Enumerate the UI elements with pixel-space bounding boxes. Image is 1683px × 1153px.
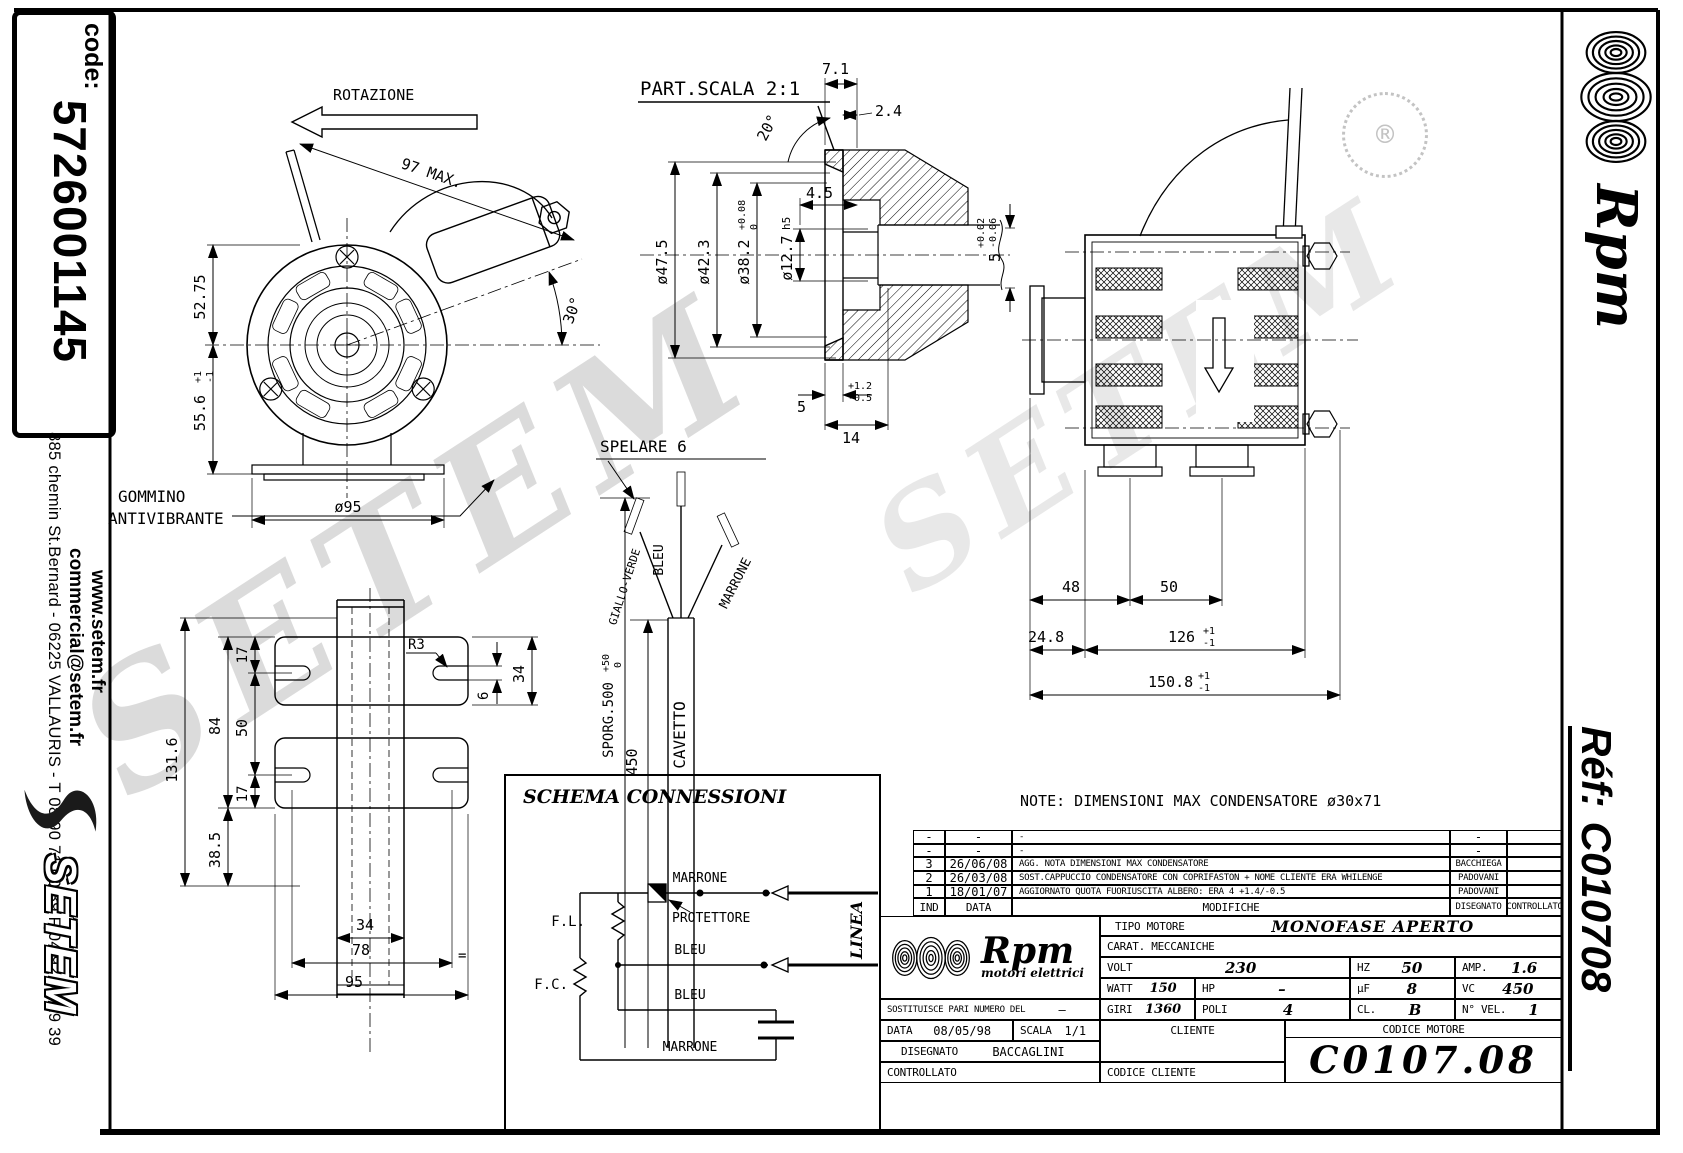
carat-cell: CARAT. MECCANICHE — [1100, 936, 1562, 957]
rev-row-dis: - — [1450, 830, 1507, 844]
dim-17a: 17 — [235, 647, 251, 664]
cavetto-label: CAVETTO — [670, 701, 689, 768]
codice-cliente-cell: CODICE CLIENTE — [1100, 1062, 1285, 1083]
dim-50-side: 50 — [1160, 578, 1178, 596]
schema-bleu-1: BLEU — [674, 943, 705, 958]
hp-cell: HP– — [1195, 978, 1350, 999]
uf-cell: µF8 — [1350, 978, 1455, 999]
cliente-cell: CLIENTE — [1100, 1020, 1285, 1062]
code-box: code: 5726001145 — [12, 10, 116, 438]
rev-row-dis: BACCHIEGA — [1450, 857, 1507, 871]
motor-base — [252, 433, 444, 480]
schema-fl: F.L. — [551, 914, 585, 930]
rev-row-data: 18/01/07 — [945, 885, 1012, 898]
vc-cell: VC450 — [1455, 978, 1562, 999]
rev-row-ind: - — [913, 830, 945, 844]
dim-150-8-tol-p: +1 — [1198, 671, 1210, 682]
cl-cell: CL.B — [1350, 999, 1455, 1020]
feet — [1098, 445, 1254, 476]
rev-row-dis: PADOVANI — [1450, 885, 1507, 898]
equal-mark: = — [458, 948, 466, 964]
setem-logo: SETEM — [14, 766, 106, 1066]
dim-450: 450 — [623, 748, 641, 775]
dim-55-6: 55.6 +1 -1 — [191, 371, 216, 431]
wire-bleu-label: BLEU — [652, 544, 667, 575]
setem-logo-text: SETEM — [35, 854, 85, 1016]
svg-text:h5: h5 — [780, 217, 793, 230]
rev-row-ind: 1 — [913, 885, 945, 898]
rev-header-controllato: CONTROLLATO — [1507, 898, 1562, 916]
schema-protettore: PROTETTORE — [672, 911, 750, 926]
dim-6: 6 — [476, 692, 492, 700]
dim-r3: R3 — [408, 637, 425, 653]
dim-20deg: 20° — [753, 111, 782, 143]
rev-row-ind: 3 — [913, 857, 945, 871]
svg-text:+0.08: +0.08 — [737, 200, 748, 230]
rev-header-modifiche: MODIFICHE — [1012, 898, 1450, 916]
rev-row-ctrl — [1507, 844, 1562, 857]
code-value: 5726001145 — [43, 100, 97, 363]
nvel-cell: N° VEL.1 — [1455, 999, 1562, 1020]
dim-5a-tol-m: -0.5 — [848, 393, 872, 404]
dim-sporg: SPORG.500 +50 0 — [601, 654, 624, 758]
dim-5a-tol-p: +1.2 — [848, 381, 872, 392]
dim-34-bottom: 34 — [356, 916, 374, 934]
controllato-cell: CONTROLLATO — [880, 1062, 1100, 1083]
dim-d12-7: ø12.7 h5 — [778, 217, 796, 281]
svg-text:ø12.7: ø12.7 — [778, 235, 796, 280]
dim-48: 48 — [1062, 578, 1080, 596]
rev-row-ind: 2 — [913, 871, 945, 885]
codice-motore-value: C0107.08 — [1286, 1038, 1561, 1082]
svg-text:+0.02: +0.02 — [976, 218, 987, 248]
rev-row-dis: - — [1450, 844, 1507, 857]
volt-cell: VOLT230 — [1100, 957, 1350, 978]
rev-header-ind: IND — [913, 898, 945, 916]
dim-97-max: 97 MAX. — [399, 154, 465, 192]
dim-50-bracket: 50 — [233, 719, 251, 737]
slots — [275, 666, 468, 782]
dim-95: 95 — [345, 973, 363, 991]
titleblock-brand: Rpm — [981, 936, 1084, 966]
rev-row-mod: - — [1012, 844, 1450, 857]
titleblock-tagline: motori elettrici — [981, 966, 1084, 980]
dim-150-8-tol-m: -1 — [1198, 683, 1210, 694]
schema-fc: F.C. — [534, 977, 568, 993]
setem-swoosh-icon — [19, 766, 101, 848]
dim-d38-2: ø38.2 +0.08 0 — [735, 200, 760, 285]
dim-d95: ø95 — [334, 498, 361, 516]
rotation-arrow-icon — [292, 107, 477, 137]
tipo-motore-cell: TIPO MOTORE MONOFASE APERTO — [1100, 916, 1562, 936]
rev-row-ctrl — [1507, 885, 1562, 898]
svg-text:0: 0 — [749, 224, 760, 230]
rev-row-ctrl — [1507, 830, 1562, 844]
schema-bleu-2: BLEU — [674, 988, 705, 1003]
dim-d42-3: ø42.3 — [695, 239, 713, 284]
titleblock-coil-icon — [889, 934, 973, 982]
dim-131-6: 131.6 — [163, 737, 181, 782]
dim-d47-5: ø47.5 — [653, 239, 671, 284]
rev-row-dis: PADOVANI — [1450, 871, 1507, 885]
dim-84: 84 — [206, 717, 224, 735]
amp-cell: AMP.1.6 — [1455, 957, 1562, 978]
svg-text:-1: -1 — [205, 371, 216, 383]
dim-126: 126 — [1168, 628, 1195, 646]
gommino-label: GOMMINO — [118, 487, 185, 506]
part-scala-title: PART.SCALA 2:1 — [640, 78, 800, 100]
capacitor-wire — [390, 182, 552, 232]
svg-text:5: 5 — [986, 253, 1004, 262]
rev-row-mod: - — [1012, 830, 1450, 844]
rev-row-ctrl — [1507, 871, 1562, 885]
schema-marrone-2: MARRONE — [663, 1040, 718, 1055]
svg-text:+1: +1 — [193, 371, 204, 383]
schema-connessioni: SCHEMA CONNESSIONI — [505, 775, 880, 1131]
codice-motore-cell: CODICE MOTORE C0107.08 — [1285, 1020, 1562, 1083]
dim-78: 78 — [352, 941, 370, 959]
wire-marrone-label: MARRONE — [717, 556, 755, 612]
rev-row-data: - — [945, 830, 1012, 844]
rotazione-label: ROTAZIONE — [333, 86, 414, 104]
antivibrante-label: ANTIVIBRANTE — [108, 509, 224, 528]
spelare-label: SPELARE 6 — [600, 437, 687, 456]
sostituisce-cell: SOSTITUISCE PARI NUMERO DEL– — [880, 999, 1100, 1020]
ref-label: Réf: — [1572, 726, 1620, 808]
rpm-logo-text: Rpm — [1583, 184, 1649, 329]
side-view: 48 50 24.8 126 +1 -1 150.8 +1 -1 — [1022, 88, 1358, 700]
dim-126-tol-p: +1 — [1203, 626, 1215, 637]
rev-header-data: DATA — [945, 898, 1012, 916]
rev-row-data: 26/06/08 — [945, 857, 1012, 871]
dim-2-4: 2.4 — [875, 102, 902, 120]
bracket-view: 131.6 84 50 17 17 38.5 R3 6 34 34 — [163, 588, 538, 1052]
svg-text:ø38.2: ø38.2 — [735, 239, 753, 284]
schema-marrone-1: MARRONE — [673, 871, 728, 886]
dim-34-right: 34 — [510, 665, 528, 683]
dim-30deg: 30° — [559, 294, 585, 326]
rev-row-ctrl — [1507, 857, 1562, 871]
schema-title: SCHEMA CONNESSIONI — [523, 786, 787, 808]
lead-wire — [1140, 88, 1302, 238]
ref-strip: Réf: C010708 — [1572, 726, 1658, 1071]
data-cell: DATA08/05/98 — [880, 1020, 1013, 1041]
ref-value: C010708 — [1572, 822, 1620, 992]
poli-cell: POLI4 — [1195, 999, 1350, 1020]
front-view: ROTAZIONE — [108, 86, 600, 528]
watt-cell: WATT150 — [1100, 978, 1195, 999]
code-label: code: — [78, 23, 107, 90]
terminal-rod — [286, 150, 320, 242]
capacitor — [423, 188, 578, 287]
line-connector-icon — [772, 886, 788, 900]
svg-text:-0.06: -0.06 — [988, 218, 999, 248]
dim-5a: 5 — [797, 398, 806, 416]
linea-label: LINEA — [847, 901, 866, 960]
rev-header-disegnato: DISEGNATO — [1450, 898, 1507, 916]
dim-7-1: 7.1 — [822, 60, 849, 78]
rev-row-data: 26/03/08 — [945, 871, 1012, 885]
dim-4-5: 4.5 — [806, 184, 833, 202]
svg-text:55.6: 55.6 — [191, 395, 209, 431]
rev-row-ind: - — [913, 844, 945, 857]
line-connector-icon-2 — [772, 958, 788, 972]
rev-row-mod: AGGIORNATO QUOTA FUORIUSCITA ALBERO: ERA… — [1012, 885, 1450, 898]
hz-cell: HZ50 — [1350, 957, 1455, 978]
note-text: NOTE: DIMENSIONI MAX CONDENSATORE ø30x71 — [1020, 792, 1381, 810]
svg-text:SPORG.500: SPORG.500 — [601, 682, 617, 758]
svg-text:+50: +50 — [601, 654, 612, 672]
dim-126-tol-m: -1 — [1203, 638, 1215, 649]
drawing-sheet: SETEM SETEM ® — [0, 0, 1683, 1153]
rpm-coil-icon — [1576, 22, 1656, 172]
dim-52-75: 52.75 — [191, 274, 209, 319]
giri-cell: GIRI1360 — [1100, 999, 1195, 1020]
svg-text:0: 0 — [613, 662, 624, 668]
rev-row-mod: AGG. NOTA DIMENSIONI MAX CONDENSATORE — [1012, 857, 1450, 871]
dim-14: 14 — [842, 429, 860, 447]
rev-row-data: - — [945, 844, 1012, 857]
scala-cell: SCALA1/1 — [1013, 1020, 1100, 1041]
disegnato-cell: DISEGNATOBACCAGLINI — [880, 1041, 1100, 1062]
dim-150-8: 150.8 — [1148, 673, 1193, 691]
dim-38-5: 38.5 — [206, 832, 224, 868]
dim-17b: 17 — [235, 786, 251, 803]
shaft-detail-view: PART.SCALA 2:1 ø47.5 ø42.3 ø38.2 +0.08 0… — [638, 60, 1015, 447]
titleblock-logo-cell: Rpm motori elettrici — [880, 916, 1100, 999]
dim-24-8: 24.8 — [1028, 628, 1064, 646]
rev-row-mod: SOST.CAPPUCCIO CONDENSATORE CON COPRIFAS… — [1012, 871, 1450, 885]
rpm-logo: Rpm — [1574, 22, 1658, 352]
